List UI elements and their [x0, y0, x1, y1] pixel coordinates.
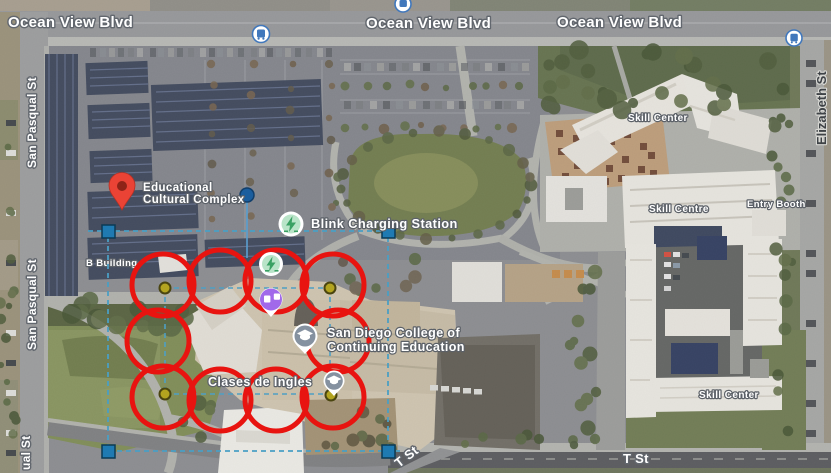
svg-text:San Pasqual St: San Pasqual St: [25, 259, 39, 350]
svg-text:Elizabeth St: Elizabeth St: [814, 71, 829, 145]
svg-text:B Building: B Building: [86, 258, 138, 269]
svg-text:Skill Centre: Skill Centre: [649, 204, 709, 215]
svg-text:Ocean View Blvd: Ocean View Blvd: [366, 15, 491, 32]
svg-text:Ocean View Blvd: Ocean View Blvd: [8, 14, 133, 31]
svg-text:Skill Center: Skill Center: [628, 113, 688, 124]
svg-text:San Diego College of: San Diego College of: [327, 326, 460, 340]
svg-text:Entry Booth: Entry Booth: [747, 199, 806, 210]
svg-text:Educational: Educational: [143, 182, 213, 194]
svg-text:Continuing Education: Continuing Education: [327, 340, 465, 354]
svg-text:Ocean View Blvd: Ocean View Blvd: [557, 14, 682, 31]
svg-text:Skill Center: Skill Center: [699, 390, 759, 401]
svg-text:Cultural Complex: Cultural Complex: [143, 194, 245, 206]
svg-text:ual St: ual St: [19, 436, 33, 470]
svg-text:T St: T St: [623, 451, 649, 466]
svg-text:Clases de Ingles: Clases de Ingles: [208, 375, 312, 389]
svg-text:Blink Charging Station: Blink Charging Station: [311, 216, 458, 231]
svg-text:San Pasqual St: San Pasqual St: [25, 77, 39, 168]
